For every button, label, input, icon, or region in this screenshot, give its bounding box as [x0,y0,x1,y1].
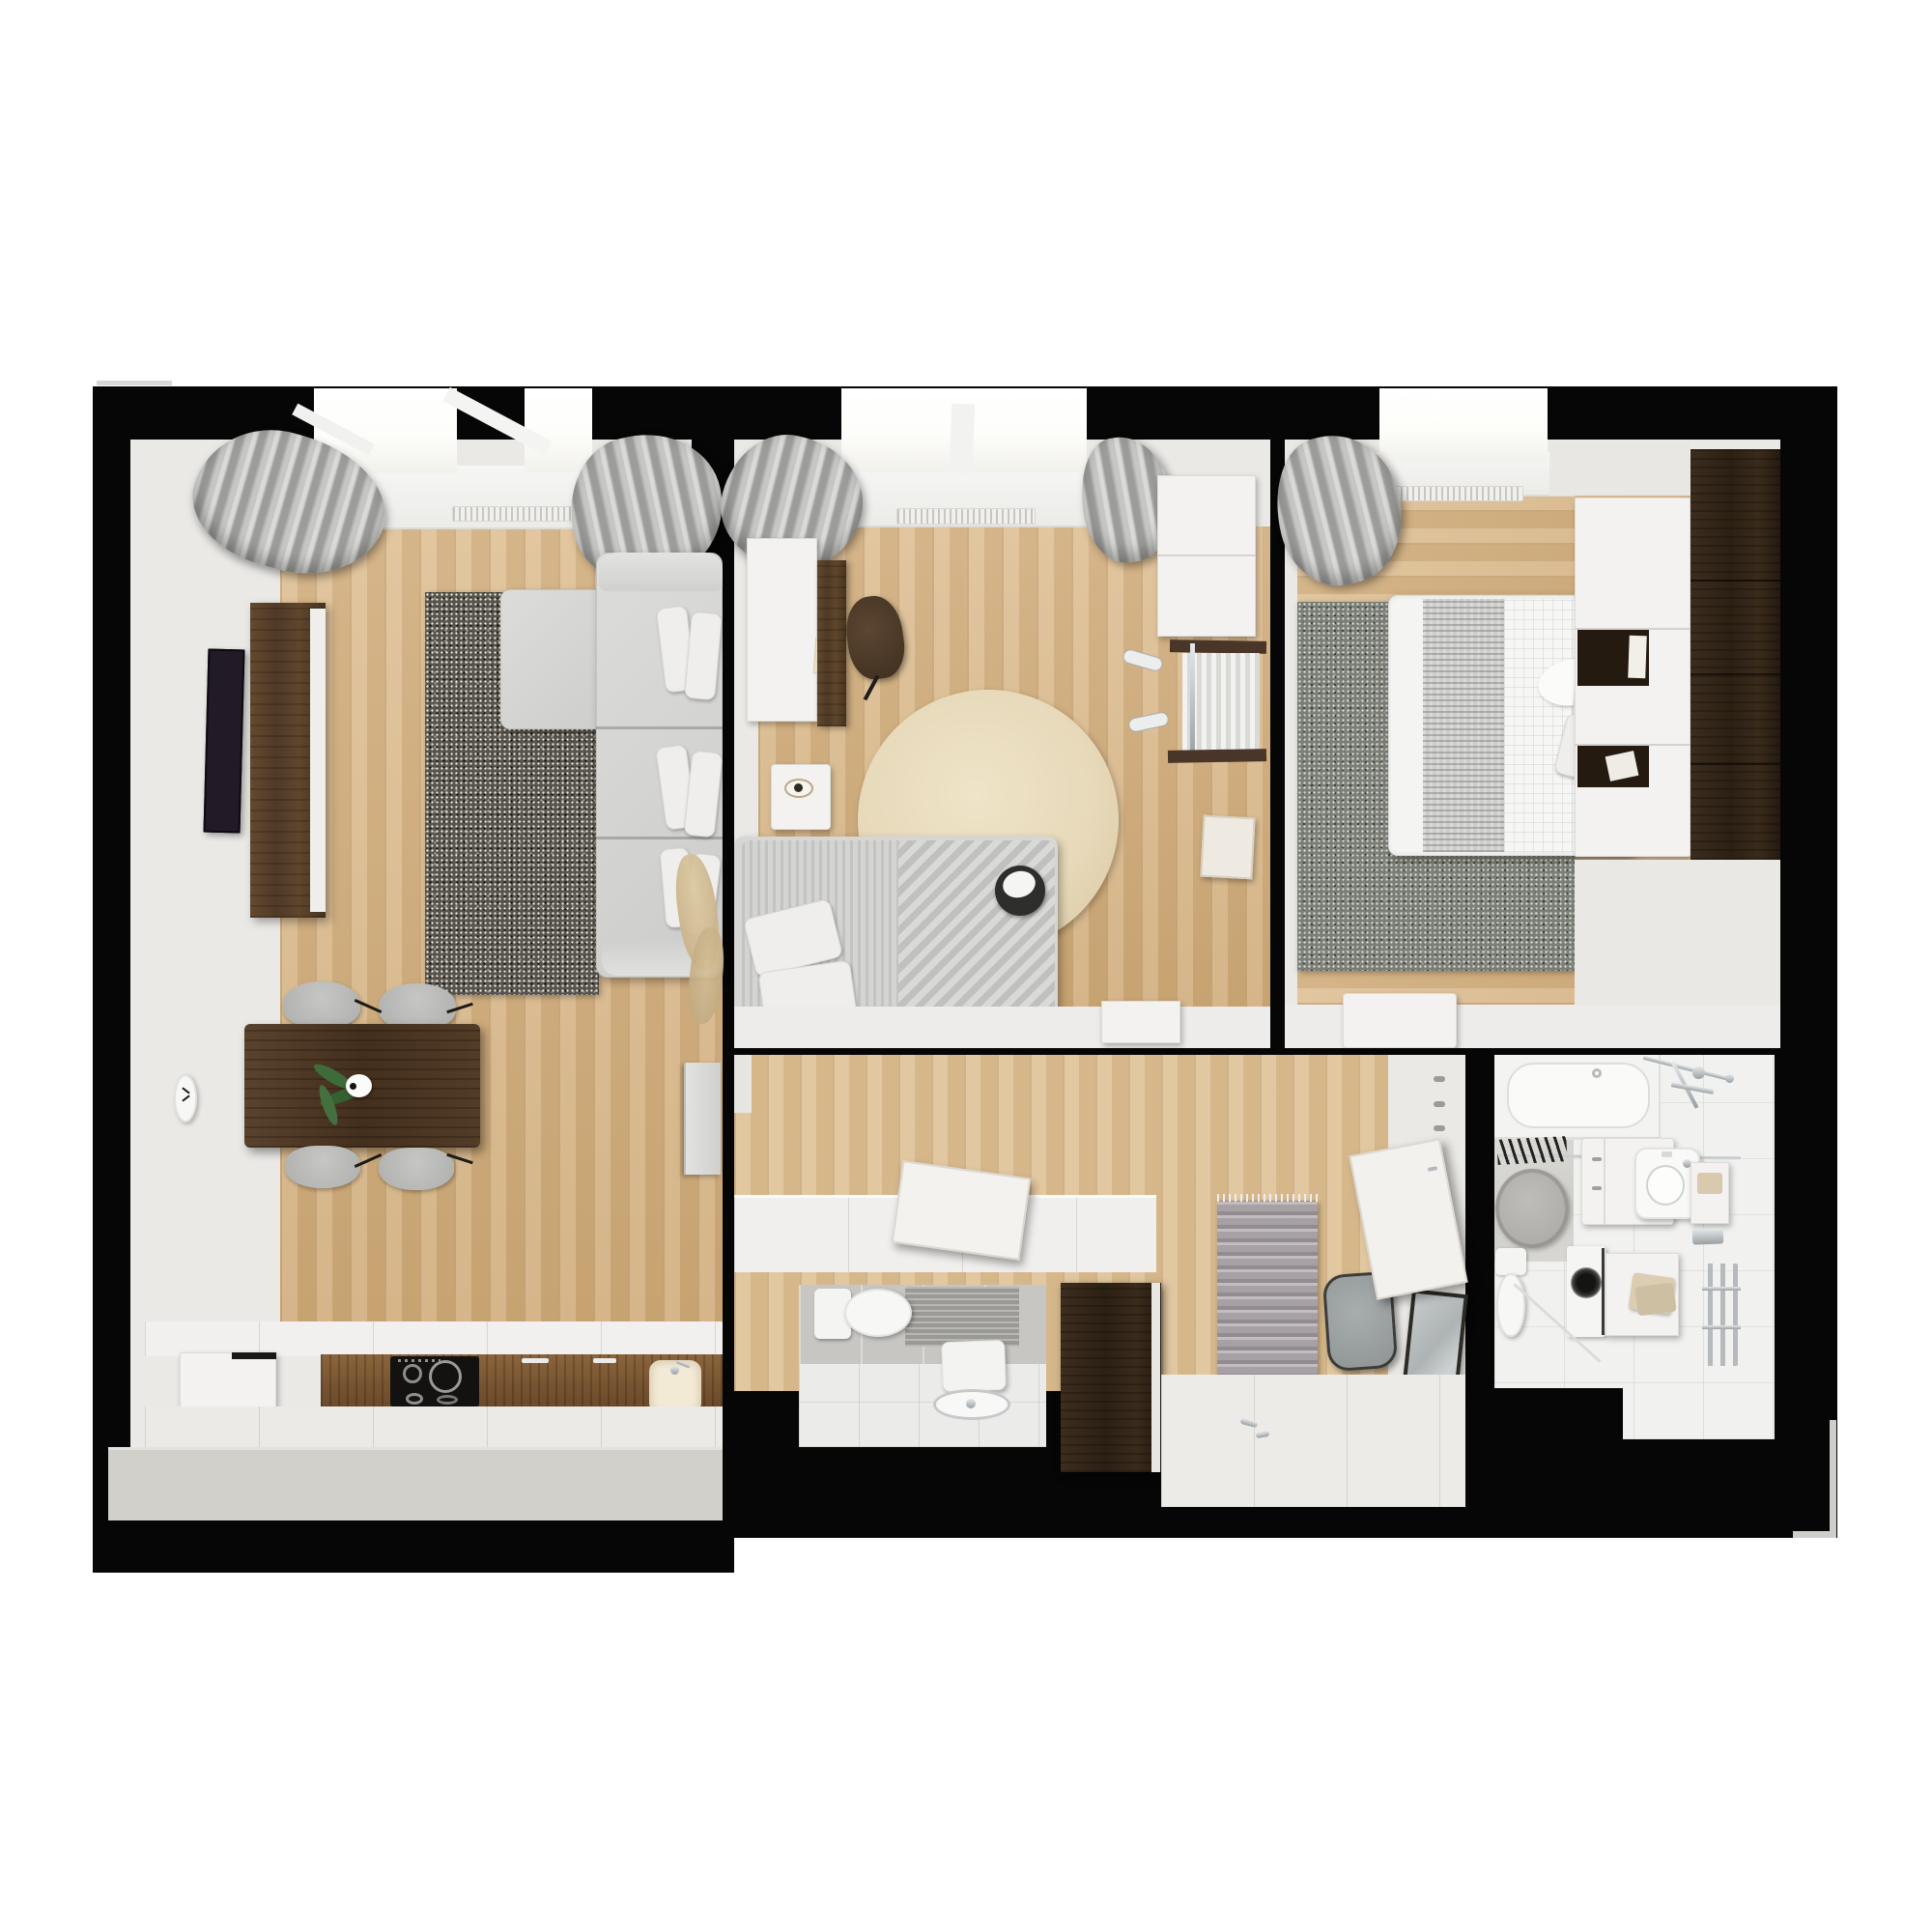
cooktop-burner [403,1364,422,1383]
wc-toilet-bowl [844,1289,912,1337]
rack-pole [1190,643,1195,757]
kitchen-countertop [145,1321,723,1356]
slab-edge-bottom-right-v [1830,1420,1836,1538]
living-radiator [452,506,587,522]
dining-chair [379,1148,454,1190]
living-window-2 [525,388,592,471]
kids-storage-box [1101,1001,1180,1043]
sink-faucet-icon [670,1366,679,1375]
bedroom-window [1379,388,1548,462]
bathroom-round-rug [1495,1169,1569,1248]
coat-hook-icon [1434,1101,1445,1107]
wardrobe-seam [1690,673,1780,675]
cooktop-controls [398,1359,440,1362]
bathroom-toilet-bowl [1496,1273,1525,1337]
dining-chair [283,981,360,1028]
kids-desk-cabinet [747,538,817,722]
cabinet-handle [593,1358,616,1363]
wardrobe-seam [1690,580,1780,582]
dining-chair [379,983,456,1030]
slab-edge-bottom-right-h [1793,1531,1836,1538]
kids-desk [817,560,846,726]
cooktop-burner [429,1360,462,1393]
sofa-seam [596,726,723,729]
bathtub-basin [1507,1063,1650,1128]
niche-book [1628,636,1647,679]
vanity-handle [1592,1157,1602,1161]
hanging-towels [1496,1136,1567,1165]
dark-wardrobe [1690,449,1780,860]
kitchen-floor-strip [145,1406,723,1447]
fridge [684,1063,721,1175]
entry-cabinet-edge [1151,1283,1160,1472]
soap-dish [1662,1151,1672,1157]
bathtub-drain [1592,1068,1602,1078]
hall-runner-rug [1217,1201,1318,1394]
coat-hook-icon [1434,1076,1445,1082]
tv-icon [204,649,245,834]
sofa-seam-2 [596,837,723,839]
floor-plan-scene [0,0,1932,1932]
sink-basin [1646,1165,1685,1206]
wc-faucet-icon [966,1399,976,1408]
cooktop-burner [406,1393,423,1405]
vanity-handle [1592,1186,1602,1190]
headboard-top-strip [1549,441,1690,496]
bedroom-radiator [1388,486,1523,501]
coat-hook-icon [1434,1125,1445,1131]
washer-door-icon [1571,1267,1602,1298]
rug-fringe-top [1217,1194,1318,1202]
towel-radiator-bar [1702,1325,1741,1329]
plan-walls-base-left-ext [93,1538,734,1573]
entry-floor [1161,1375,1465,1507]
wc-basin-cabinet [941,1340,1007,1392]
entry-cabinet [1061,1283,1161,1472]
cabinet-handle [522,1358,549,1363]
bedroom-bench [1343,993,1457,1048]
vase-mouth [350,1083,356,1090]
sideboard-front [310,609,326,912]
shelf-towel [1697,1173,1722,1194]
leaning-board [1200,815,1255,880]
washer-edge [1602,1248,1605,1335]
slab-edge-top-left [97,381,172,385]
bathroom-notch [1494,1388,1623,1439]
rack-rail-top [1170,639,1266,654]
open-flap-door [892,1160,1032,1261]
kitchen-end-cabinet [180,1352,276,1408]
bed-sheet-edge [1391,599,1426,852]
rack-rail-bottom [1168,749,1266,763]
bathroom-toilet-tank [1495,1248,1526,1275]
toilet-paper-holder [1692,1228,1724,1244]
shower-head-icon [1692,1066,1705,1079]
sofa-armrest-top [599,553,723,591]
shower-knob-icon [1725,1074,1734,1083]
bed-knit-throw [1423,599,1504,852]
wardrobe-seam [1690,763,1780,765]
cooktop-burner [437,1395,458,1405]
kids-window-mullion [950,404,975,474]
towel-radiator [1702,1264,1741,1366]
kitchen-end-cabinet-trim [232,1352,276,1359]
towel-radiator-bar [1702,1287,1741,1291]
entry-platform [108,1447,723,1520]
wc-towel [905,1287,1019,1347]
bedroom-lower-floor [1575,860,1780,1005]
kids-radiator [896,508,1036,525]
folded-towel-2 [1634,1283,1676,1317]
dining-chair [285,1146,360,1188]
hall-wall-sliver [734,1055,752,1113]
candle [794,783,803,792]
cabinet-seam [1157,554,1256,556]
kids-floor-strip [734,1007,1270,1048]
vanity-seam [1604,1138,1605,1225]
